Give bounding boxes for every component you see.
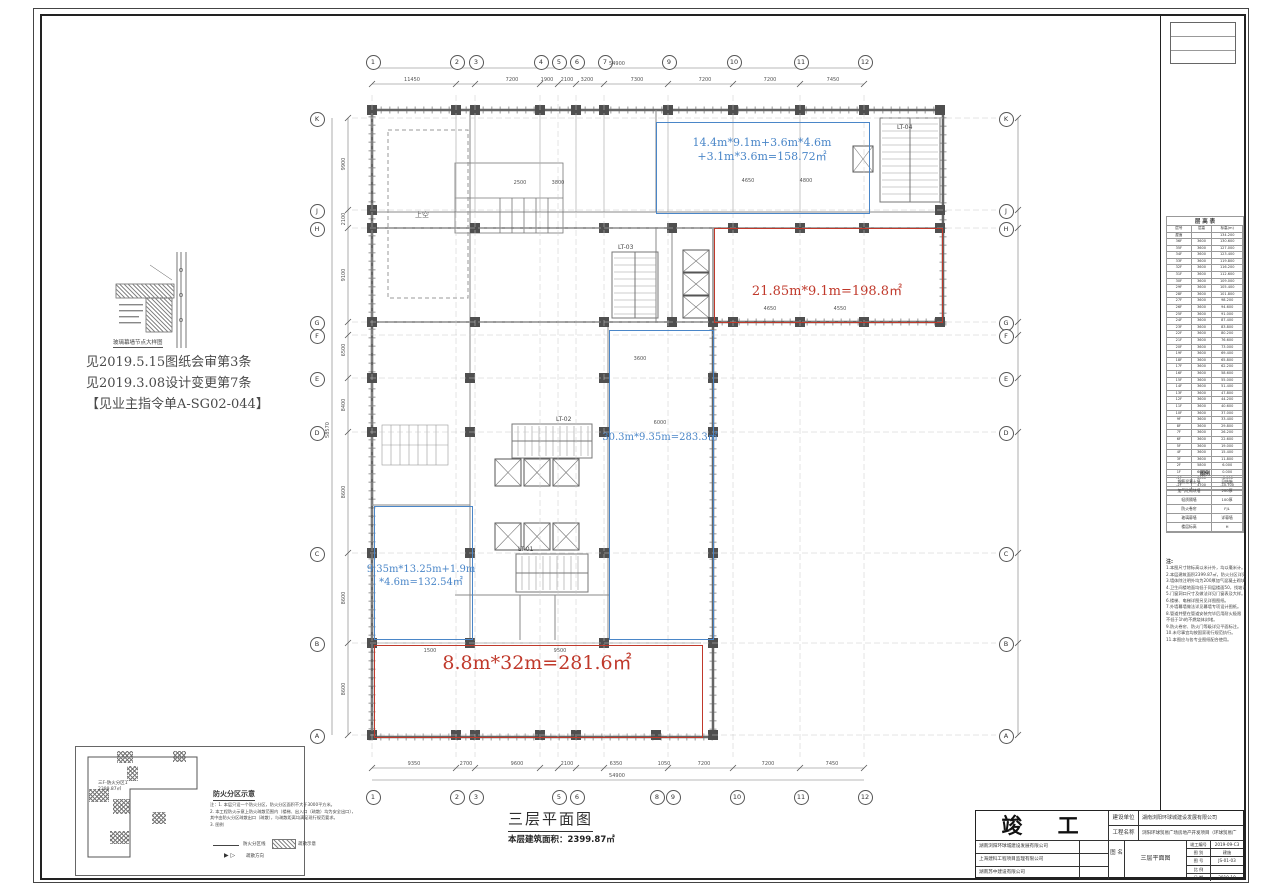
floor-area-note: 本层建筑面积：2399.87㎡ — [508, 833, 615, 845]
floor-table-cell: 3600 — [1192, 292, 1213, 298]
floor-table-cell: 3600 — [1192, 411, 1213, 417]
general-note-line: 11.本图应与各专业图纸配合使用。 — [1166, 637, 1246, 644]
wall-legend-spec: FJL — [1212, 505, 1243, 513]
grid-bubble: 2 — [450, 790, 465, 805]
floor-table-cell: 58.600 — [1212, 371, 1243, 377]
floor-table-header-cell: 层号 — [1167, 226, 1192, 232]
grid-bubble: 1 — [366, 790, 381, 805]
floor-table-cell: 130.600 — [1212, 239, 1243, 245]
stamp-info-row: 比 例 — [1187, 866, 1243, 874]
stamp-info-row: 图 号JS-01-03 — [1187, 857, 1243, 865]
floor-table-row: 28F3600101.800 — [1167, 292, 1243, 299]
floor-table-cell: 101.800 — [1212, 292, 1243, 298]
floor-table-cell: 3600 — [1192, 285, 1213, 291]
floor-table-cell: 7F — [1167, 430, 1192, 436]
detail-hatch-b — [146, 298, 172, 332]
grid-bubble: K — [310, 112, 325, 127]
floor-table-row: 35F3600127.000 — [1167, 246, 1243, 253]
floor-table-cell: 11F — [1167, 404, 1192, 410]
office-desks — [382, 425, 448, 465]
floor-area-label: 本层建筑面积： — [508, 835, 568, 845]
floor-table-cell: 6F — [1167, 437, 1192, 443]
floor-table-row: 34F3600123.400 — [1167, 252, 1243, 259]
floor-table-row: 20F360073.000 — [1167, 345, 1243, 352]
floor-table-cell: 28F — [1167, 292, 1192, 298]
floor-table-cell: 18F — [1167, 358, 1192, 364]
wall-legend-name: 轻质隔墙 — [1167, 496, 1212, 504]
floor-table-cell: 32F — [1167, 265, 1192, 271]
floor-table-cell: 80.200 — [1212, 331, 1243, 337]
floor-table-title: 层 高 表 — [1166, 216, 1244, 225]
floor-table-cell: 29F — [1167, 285, 1192, 291]
area-text-line: +3.1m*3.6m=158.72㎡ — [693, 150, 832, 164]
fire-heading: 防火分区示意 — [213, 789, 255, 801]
floor-table-cell: 10F — [1167, 411, 1192, 417]
floor-table-row: 4F360015.400 — [1167, 450, 1243, 457]
floor-table-cell: 3F — [1167, 457, 1192, 463]
stair-label: LT-02 — [556, 416, 571, 423]
floor-table-cell: 34F — [1167, 252, 1192, 258]
wall-legend-row: 玻璃幕墙详幕墙 — [1167, 514, 1243, 523]
plan-dim-label: 3800 — [552, 180, 565, 186]
floor-table-row: 6F360022.600 — [1167, 437, 1243, 444]
general-note-line: 3.墙体除注明外均为200厚加气混凝土砌块墙。 — [1166, 578, 1246, 585]
fire-legend-dir-label: 疏散方向 — [246, 853, 264, 859]
dim-label: 9900 — [341, 158, 347, 171]
stamp-info-row: 日 期2019-10 — [1187, 874, 1243, 881]
grid-bubble: 11 — [794, 790, 809, 805]
wall-legend-spec: 见结施 — [1212, 478, 1243, 486]
floor-table-cell: 3600 — [1192, 279, 1213, 285]
grid-bubble: A — [999, 729, 1014, 744]
floor-table-cell: 5F — [1167, 444, 1192, 450]
grid-bubble: B — [310, 637, 325, 652]
floor-table-cell: 20F — [1167, 345, 1192, 351]
stamp-info-value: JS-01-03 — [1211, 857, 1243, 864]
plan-dim-label: 4650 — [742, 178, 755, 184]
drawing-sheet: 14.4m*9.1m+3.6m*4.6m+3.1m*3.6m=158.72㎡21… — [0, 0, 1266, 895]
floor-table-cell: 29.800 — [1212, 424, 1243, 430]
floor-table-cell: 116.200 — [1212, 265, 1243, 271]
floor-table-cell: 26.200 — [1212, 430, 1243, 436]
wall-legend-row: 轻质隔墙100厚 — [1167, 496, 1243, 505]
general-note-line: 5.门窗洞口尺寸及做法详见门窗表及大样。 — [1166, 591, 1246, 598]
grid-bubble: C — [999, 547, 1014, 562]
floor-table-cell: 62.200 — [1212, 364, 1243, 370]
title-block: 竣 工 图 湖南浏阳环球城建设发展有限公司上海建科工程项目监理有限公司湖南苏中建… — [975, 810, 1244, 878]
area-region-blue-mid — [609, 330, 714, 640]
floor-table-cell: 25F — [1167, 312, 1192, 318]
grid-bubble: 2 — [450, 55, 465, 70]
floor-table-cell: 3600 — [1192, 351, 1213, 357]
general-notes: 注: 1.本图尺寸除标高以米计外，均以毫米计。2.本层建筑面积2399.87㎡，… — [1166, 558, 1246, 643]
dim-label: 6350 — [610, 761, 623, 767]
floor-table-cell: 33.400 — [1212, 417, 1243, 423]
floor-table-cell: 2F — [1167, 463, 1192, 469]
floor-table-cell: 19.000 — [1212, 444, 1243, 450]
grid-bubble: 9 — [662, 55, 677, 70]
detail-hatch-a — [116, 284, 174, 298]
company-row: 上海建科工程项目监理有限公司 — [976, 854, 1109, 867]
dim-label: 8600 — [341, 683, 347, 696]
floor-table-cell: 15.400 — [1212, 450, 1243, 456]
grid-bubble: F — [999, 329, 1014, 344]
floor-table-cell: 109.000 — [1212, 279, 1243, 285]
floor-table-row: 29F3600105.400 — [1167, 285, 1243, 292]
stamp-info-label: 图 号 — [1187, 857, 1211, 864]
revision-notes: 见2019.5.15图纸会审第3条 见2019.3.08设计变更第7条 【见业主… — [86, 352, 269, 415]
dim-label: 7450 — [826, 761, 839, 767]
floor-table-row: 32F3600116.200 — [1167, 265, 1243, 272]
dim-label: 8400 — [341, 399, 347, 412]
floor-table-cell: 屋面 — [1167, 233, 1192, 239]
plan-dim-label: 4550 — [834, 306, 847, 312]
floor-table-row: 屋面134.200 — [1167, 233, 1243, 240]
dim-label: 2100 — [561, 77, 574, 83]
plan-dim-label: 2500 — [514, 180, 527, 186]
area-text-red-top: 21.85m*9.1m=198.8㎡ — [752, 284, 902, 300]
floor-table-row: 17F360062.200 — [1167, 364, 1243, 371]
floor-table-cell: 123.400 — [1212, 252, 1243, 258]
wall-legend-name: 防火卷帘 — [1167, 505, 1212, 513]
wall-legend-row: 楼层标高H — [1167, 523, 1243, 532]
stamp-info-value: 建施 — [1211, 849, 1243, 856]
floor-table-row: 9F360033.400 — [1167, 417, 1243, 424]
area-text-line: 21.85m*9.1m=198.8㎡ — [752, 284, 902, 300]
grid-bubble: C — [310, 547, 325, 562]
stamp-info-value: 2019-09-C3 — [1211, 841, 1243, 848]
dim-label: 9350 — [408, 761, 421, 767]
grid-bubble: A — [310, 729, 325, 744]
general-note-line: 7.外墙幕墙做法详见幕墙专项设计图纸。 — [1166, 604, 1246, 611]
grid-bubble: J — [310, 204, 325, 219]
floor-table-cell: 73.000 — [1212, 345, 1243, 351]
floor-table-row: 8F360029.800 — [1167, 424, 1243, 431]
grid-bubble: E — [310, 372, 325, 387]
floor-table-cell: 47.800 — [1212, 391, 1243, 397]
wall-legend-row: 钢筋混凝土墙见结施 — [1167, 478, 1243, 487]
floor-table-row: 24F360087.400 — [1167, 318, 1243, 325]
fire-notes: 注：1. 本层只设一个防火分区，防火分区面积不大于3000平方米。2. 本工程防… — [210, 802, 355, 828]
wall-legend-name: 楼层标高 — [1167, 523, 1212, 531]
floor-table-cell: 51.400 — [1212, 384, 1243, 390]
floor-table-cell: 3600 — [1192, 430, 1213, 436]
floor-table-cell: 3600 — [1192, 298, 1213, 304]
owner-value: 湖南浏阳环球城建设发展有限公司 — [1139, 811, 1243, 826]
floor-table-cell: 3600 — [1192, 371, 1213, 377]
company-name: 上海建科工程项目监理有限公司 — [976, 854, 1080, 866]
evacuation-arrow-icon: ▶ ▷ — [224, 852, 235, 859]
floor-table-row: 12F360044.200 — [1167, 397, 1243, 404]
floor-table-row: 3F360011.800 — [1167, 457, 1243, 464]
grid-bubble: 11 — [794, 55, 809, 70]
area-region-red-top — [714, 228, 943, 323]
floor-table-row: 33F3600119.800 — [1167, 259, 1243, 266]
floor-area-value: 2399.87㎡ — [568, 835, 615, 845]
asbuilt-stamp-title: 竣 工 图 — [976, 811, 1109, 841]
grid-bubble: 10 — [727, 55, 742, 70]
floor-table-row: 14F360051.400 — [1167, 384, 1243, 391]
dim-label: 1050 — [658, 761, 671, 767]
floor-table-row: 2F58006.000 — [1167, 463, 1243, 470]
grid-bubble: 12 — [858, 55, 873, 70]
dim-total-label: 54900 — [609, 61, 625, 67]
grid-bubble: F — [310, 329, 325, 344]
floor-table-cell: 17F — [1167, 364, 1192, 370]
floor-height-table: 层 高 表 层号层高标高(m)屋面134.20036F3600130.60035… — [1166, 216, 1244, 491]
floor-table-cell: 36F — [1167, 239, 1192, 245]
wall-legend-title: 图例 — [1166, 470, 1244, 477]
floor-table-cell: 15F — [1167, 378, 1192, 384]
general-note-line: 10.未尽事宜均按国家现行规范执行。 — [1166, 630, 1246, 637]
company-rows: 湖南浏阳环球城建设发展有限公司上海建科工程项目监理有限公司湖南苏中建设有限公司 — [976, 841, 1109, 877]
fire-zone-area: 2399.87㎡ — [98, 786, 121, 792]
grid-bubble: 3 — [469, 790, 484, 805]
floor-table-cell: 24F — [1167, 318, 1192, 324]
company-row: 湖南苏中建设有限公司 — [976, 867, 1109, 879]
grid-bubble: D — [999, 426, 1014, 441]
floor-table-row: 27F360098.200 — [1167, 298, 1243, 305]
void-label: 上空 — [415, 210, 429, 220]
floor-table-row: 16F360058.600 — [1167, 371, 1243, 378]
area-text-blue-mid: 30.3m*9.35m=283.3㎡ — [602, 432, 718, 445]
floor-table-row: 25F360091.000 — [1167, 312, 1243, 319]
dim-label: 7200 — [698, 761, 711, 767]
general-note-line: 1.本图尺寸除标高以米计外，均以毫米计。 — [1166, 565, 1246, 572]
dim-label: 7200 — [699, 77, 712, 83]
grid-bubble: 12 — [858, 790, 873, 805]
detail-caption: 玻璃幕墙节点大样图 — [113, 338, 163, 348]
floor-table-row: 22F360080.200 — [1167, 331, 1243, 338]
dim-label: 7450 — [827, 77, 840, 83]
grid-bubble: 8 — [650, 790, 665, 805]
floor-table-cell: 3600 — [1192, 378, 1213, 384]
floor-table-cell: 3600 — [1192, 305, 1213, 311]
floor-table-row: 23F360083.800 — [1167, 325, 1243, 332]
floor-table-cell: 3600 — [1192, 331, 1213, 337]
floor-table-cell: 3600 — [1192, 444, 1213, 450]
fire-legend-line-label: 防火分区线 — [243, 841, 266, 847]
floor-table-cell: 22.600 — [1212, 437, 1243, 443]
floor-table-row: 19F360069.400 — [1167, 351, 1243, 358]
floor-table-cell: 40.600 — [1212, 404, 1243, 410]
grid-bubble: D — [310, 426, 325, 441]
floor-table-cell: 87.400 — [1212, 318, 1243, 324]
dim-label: 9100 — [341, 269, 347, 282]
grid-bubble: J — [999, 204, 1014, 219]
dim-label: 7200 — [764, 77, 777, 83]
floor-table-cell: 91.000 — [1212, 312, 1243, 318]
grid-bubble: 5 — [552, 790, 567, 805]
fire-note-line: 其中由防火分区疏散出口（疏散），与疏散距离均满足现行规范要求。 — [210, 815, 355, 822]
wall-legend-name: 玻璃幕墙 — [1167, 514, 1212, 522]
dim-label: 2100 — [561, 761, 574, 767]
floor-table-cell: 30F — [1167, 279, 1192, 285]
stair-label: LT-03 — [618, 244, 633, 251]
floor-table-cell: 26F — [1167, 305, 1192, 311]
floor-table-cell: 37.000 — [1212, 411, 1243, 417]
dim-label: 1900 — [541, 77, 554, 83]
grid-bubble: 1 — [366, 55, 381, 70]
floor-table-cell: 112.600 — [1212, 272, 1243, 278]
plan-dim-label: 3600 — [634, 356, 647, 362]
stamp-info-value — [1211, 866, 1243, 873]
stamp-info-value: 2019-10 — [1211, 874, 1243, 881]
floor-table-cell: 16F — [1167, 371, 1192, 377]
floor-table-header-cell: 层高 — [1192, 226, 1213, 232]
fire-legend-hatch-label: 疏散示意 — [298, 841, 316, 847]
dim-label: 9600 — [511, 761, 524, 767]
toilet-block — [455, 163, 563, 233]
floor-table-cell: 35F — [1167, 246, 1192, 252]
dim-label: 11450 — [404, 77, 420, 83]
floor-table-cell: 27F — [1167, 298, 1192, 304]
area-text-line: 9.35m*13.25m+1.9m — [367, 564, 476, 577]
floor-table-cell: 105.400 — [1212, 285, 1243, 291]
dim-label: 6500 — [341, 344, 347, 357]
floor-table-cell: 3600 — [1192, 259, 1213, 265]
stamp-info-label: 日 期 — [1187, 874, 1211, 881]
wall-legend-spec: H — [1212, 523, 1243, 531]
dim-label: 7300 — [631, 77, 644, 83]
dim-label: 7200 — [506, 77, 519, 83]
area-text-blue-left: 9.35m*13.25m+1.9m*4.6m=132.54㎡ — [367, 564, 476, 589]
wall-legend-table: 图例 钢筋混凝土墙见结施加气砼砌块墙200厚轻质隔墙100厚防火卷帘FJL玻璃幕… — [1166, 470, 1244, 533]
fire-note-line: 注：1. 本层只设一个防火分区，防火分区面积不大于3000平方米。 — [210, 802, 355, 809]
area-text-red-bottom: 8.8m*32m=281.6㎡ — [442, 652, 631, 676]
grid-bubble: 10 — [730, 790, 745, 805]
plan-dim-label: 9500 — [554, 648, 567, 654]
floor-table-row: 15F360055.000 — [1167, 378, 1243, 385]
fire-legend-line-sample — [213, 845, 239, 846]
floor-table-row: 7F360026.200 — [1167, 430, 1243, 437]
floor-table-cell: 3600 — [1192, 265, 1213, 271]
stamp-info-label: 图 别 — [1187, 849, 1211, 856]
wall-legend-name: 钢筋混凝土墙 — [1167, 478, 1212, 486]
stamp-info-row: 竣工编号2019-09-C3 — [1187, 841, 1243, 849]
floor-table-cell: 23F — [1167, 325, 1192, 331]
floor-table-cell: 3600 — [1192, 417, 1213, 423]
floor-table-cell: 3600 — [1192, 252, 1213, 258]
owner-label: 建设单位 — [1109, 811, 1139, 826]
floor-table-cell: 134.200 — [1212, 233, 1243, 239]
floor-table-cell: 3600 — [1192, 364, 1213, 370]
floor-table-cell: 13F — [1167, 391, 1192, 397]
floor-table-row: 26F360094.600 — [1167, 305, 1243, 312]
floor-table-cell: 12F — [1167, 397, 1192, 403]
floor-table-cell: 3600 — [1192, 338, 1213, 344]
floor-table-cell: 3600 — [1192, 312, 1213, 318]
floor-table-cell: 94.600 — [1212, 305, 1243, 311]
wall-legend-row: 防火卷帘FJL — [1167, 505, 1243, 514]
floor-table-cell: 6.000 — [1212, 463, 1243, 469]
floor-table-cell: 98.200 — [1212, 298, 1243, 304]
floor-table-cell: 3600 — [1192, 272, 1213, 278]
project-label: 工程名称 — [1109, 826, 1139, 841]
floor-table-cell: 3600 — [1192, 450, 1213, 456]
wall-legend-row: 加气砼砌块墙200厚 — [1167, 487, 1243, 496]
stamp-info-label: 竣工编号 — [1187, 841, 1211, 848]
dim-label: 7200 — [762, 761, 775, 767]
floor-table-cell: 3600 — [1192, 239, 1213, 245]
floor-table-row: 36F3600130.600 — [1167, 239, 1243, 246]
floor-table-cell: 22F — [1167, 331, 1192, 337]
floor-table-cell: 4F — [1167, 450, 1192, 456]
dim-label: 2100 — [341, 213, 347, 226]
company-name: 湖南浏阳环球城建设发展有限公司 — [976, 841, 1080, 853]
dim-label: 2700 — [460, 761, 473, 767]
floor-table-cell: 9F — [1167, 417, 1192, 423]
floor-table-cell: 3600 — [1192, 345, 1213, 351]
company-name: 湖南苏中建设有限公司 — [976, 867, 1080, 879]
floor-table-cell: 65.800 — [1212, 358, 1243, 364]
floor-table-cell: 5800 — [1192, 463, 1213, 469]
grid-bubble: 6 — [570, 55, 585, 70]
grid-bubble: E — [999, 372, 1014, 387]
grid-bubble: 6 — [570, 790, 585, 805]
floor-table-row: 30F3600109.000 — [1167, 279, 1243, 286]
floor-table-row: 18F360065.800 — [1167, 358, 1243, 365]
fire-legend-hatch-sample — [272, 839, 296, 849]
plan-dim-label: 4800 — [800, 178, 813, 184]
floor-table-row: 31F3600112.600 — [1167, 272, 1243, 279]
grid-bubble: 4 — [534, 55, 549, 70]
area-text-line: 14.4m*9.1m+3.6m*4.6m — [693, 136, 832, 150]
floor-table-cell: 3600 — [1192, 397, 1213, 403]
floor-table-row: 13F360047.800 — [1167, 391, 1243, 398]
floor-table-cell: 3600 — [1192, 457, 1213, 463]
grid-bubble: 9 — [666, 790, 681, 805]
area-text-blue-top: 14.4m*9.1m+3.6m*4.6m+3.1m*3.6m=158.72㎡ — [693, 136, 832, 164]
floor-table-cell: 3600 — [1192, 358, 1213, 364]
floor-table-cell: 14F — [1167, 384, 1192, 390]
area-text-line: 8.8m*32m=281.6㎡ — [442, 652, 631, 676]
dim-label: 8600 — [341, 592, 347, 605]
dwgname-label: 图 名 — [1109, 841, 1125, 877]
grid-bubble: 5 — [552, 55, 567, 70]
stair-label: LT-04 — [897, 124, 912, 131]
floor-table-cell: 76.600 — [1212, 338, 1243, 344]
dwgname-value: 三层平面图 — [1125, 841, 1187, 877]
grid-bubble: K — [999, 112, 1014, 127]
floor-table-cell: 3600 — [1192, 384, 1213, 390]
plan-dim-label: 1500 — [424, 648, 437, 654]
floor-table-cell: 69.400 — [1212, 351, 1243, 357]
fire-note-line: 2. 本工程防火示意上防火疏散范围内（楼梯、出入口（疏散）均为安全出口）， — [210, 809, 355, 816]
grid-bubble: 3 — [469, 55, 484, 70]
floor-table-cell: 21F — [1167, 338, 1192, 344]
floor-table-cell: 33F — [1167, 259, 1192, 265]
floor-table-cell: 3600 — [1192, 391, 1213, 397]
revision-note: 【见业主指令单A-SG02-044】 — [86, 394, 269, 415]
stair-label: LT-01 — [518, 546, 533, 553]
floor-table-cell: 3600 — [1192, 404, 1213, 410]
floor-table-cell: 3600 — [1192, 318, 1213, 324]
dim-total-label: 54900 — [609, 773, 625, 779]
stamp-info-rows: 竣工编号2019-09-C3图 别建施图 号JS-01-03比 例日 期2019… — [1187, 841, 1243, 877]
floor-table-cell: 44.200 — [1212, 397, 1243, 403]
dim-total-label: 58570 — [325, 422, 331, 438]
floor-table-row: 5F360019.000 — [1167, 444, 1243, 451]
dim-label: 8600 — [341, 486, 347, 499]
notes-heading: 注: — [1166, 558, 1246, 565]
area-text-line: *4.6m=132.54㎡ — [367, 577, 476, 590]
floor-table-cell — [1192, 233, 1213, 239]
plan-dim-label: 6000 — [654, 420, 667, 426]
stamp-info-label: 比 例 — [1187, 866, 1211, 873]
project-value: 浏阳环球贸易广场房地产开发项目（环球贸易广场） — [1139, 826, 1243, 841]
grid-bubble: H — [310, 222, 325, 237]
